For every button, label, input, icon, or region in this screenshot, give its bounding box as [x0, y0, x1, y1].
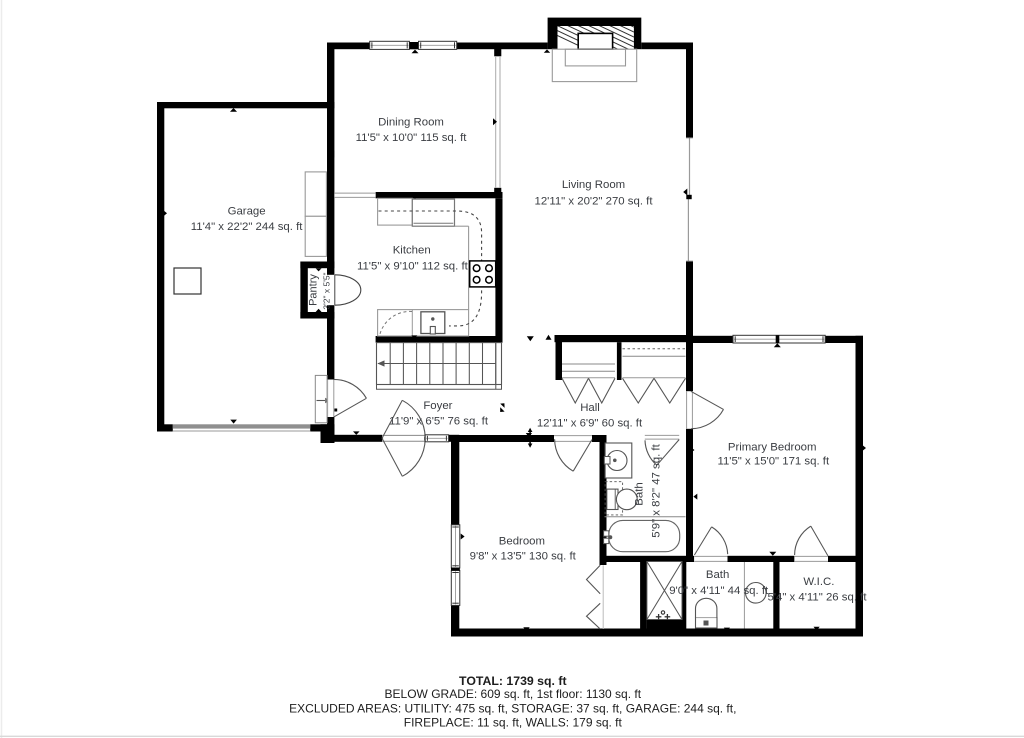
svg-text:Bath: Bath	[706, 569, 729, 581]
svg-text:5'9" x 8'2" 47 sq. ft: 5'9" x 8'2" 47 sq. ft	[651, 443, 663, 537]
svg-text:5'4" x 4'11" 26 sq. ft: 5'4" x 4'11" 26 sq. ft	[768, 592, 868, 604]
svg-text:9'8" x 13'5" 130 sq. ft: 9'8" x 13'5" 130 sq. ft	[470, 551, 577, 563]
svg-text:W.I.C.: W.I.C.	[803, 576, 834, 588]
svg-text:Kitchen: Kitchen	[393, 245, 431, 257]
svg-text:Living Room: Living Room	[562, 179, 625, 191]
svg-text:TOTAL: 1739 sq. ft: TOTAL: 1739 sq. ft	[459, 674, 567, 688]
svg-text:FIREPLACE: 11 sq. ft, WALLS: 1: FIREPLACE: 11 sq. ft, WALLS: 179 sq. ft	[404, 716, 623, 730]
svg-text:Pantry: Pantry	[308, 274, 320, 306]
svg-text:11'9" x 6'5" 76 sq. ft: 11'9" x 6'5" 76 sq. ft	[389, 416, 489, 428]
svg-text:12'11" x 6'9" 60 sq. ft: 12'11" x 6'9" 60 sq. ft	[537, 418, 643, 430]
svg-text:9'0" x 4'11" 44 sq. ft: 9'0" x 4'11" 44 sq. ft	[669, 585, 769, 597]
svg-text:EXCLUDED AREAS: UTILITY: 475 s: EXCLUDED AREAS: UTILITY: 475 sq. ft, STO…	[289, 702, 736, 716]
svg-text:12'11" x 20'2" 270 sq. ft: 12'11" x 20'2" 270 sq. ft	[535, 196, 654, 208]
svg-text:11'5" x 10'0" 115 sq. ft: 11'5" x 10'0" 115 sq. ft	[356, 132, 468, 144]
svg-text:Bath: Bath	[634, 482, 646, 505]
svg-text:Hall: Hall	[580, 402, 600, 414]
svg-text:BELOW GRADE: 609 sq. ft, 1st f: BELOW GRADE: 609 sq. ft, 1st floor: 1130…	[385, 687, 642, 701]
svg-text:Primary Bedroom: Primary Bedroom	[728, 441, 817, 453]
svg-text:11'4" x 22'2" 244 sq. ft: 11'4" x 22'2" 244 sq. ft	[191, 221, 303, 233]
svg-text:Dining Room: Dining Room	[378, 117, 444, 129]
svg-text:Foyer: Foyer	[423, 400, 452, 412]
svg-text:11'5" x 15'0" 171 sq. ft: 11'5" x 15'0" 171 sq. ft	[717, 455, 829, 467]
svg-text:11'5" x 9'10" 112 sq. ft: 11'5" x 9'10" 112 sq. ft	[357, 260, 469, 272]
svg-text:Bedroom: Bedroom	[499, 536, 545, 548]
svg-text:Garage: Garage	[228, 206, 266, 218]
svg-text:3'2" x 5'5": 3'2" x 5'5"	[322, 272, 332, 309]
